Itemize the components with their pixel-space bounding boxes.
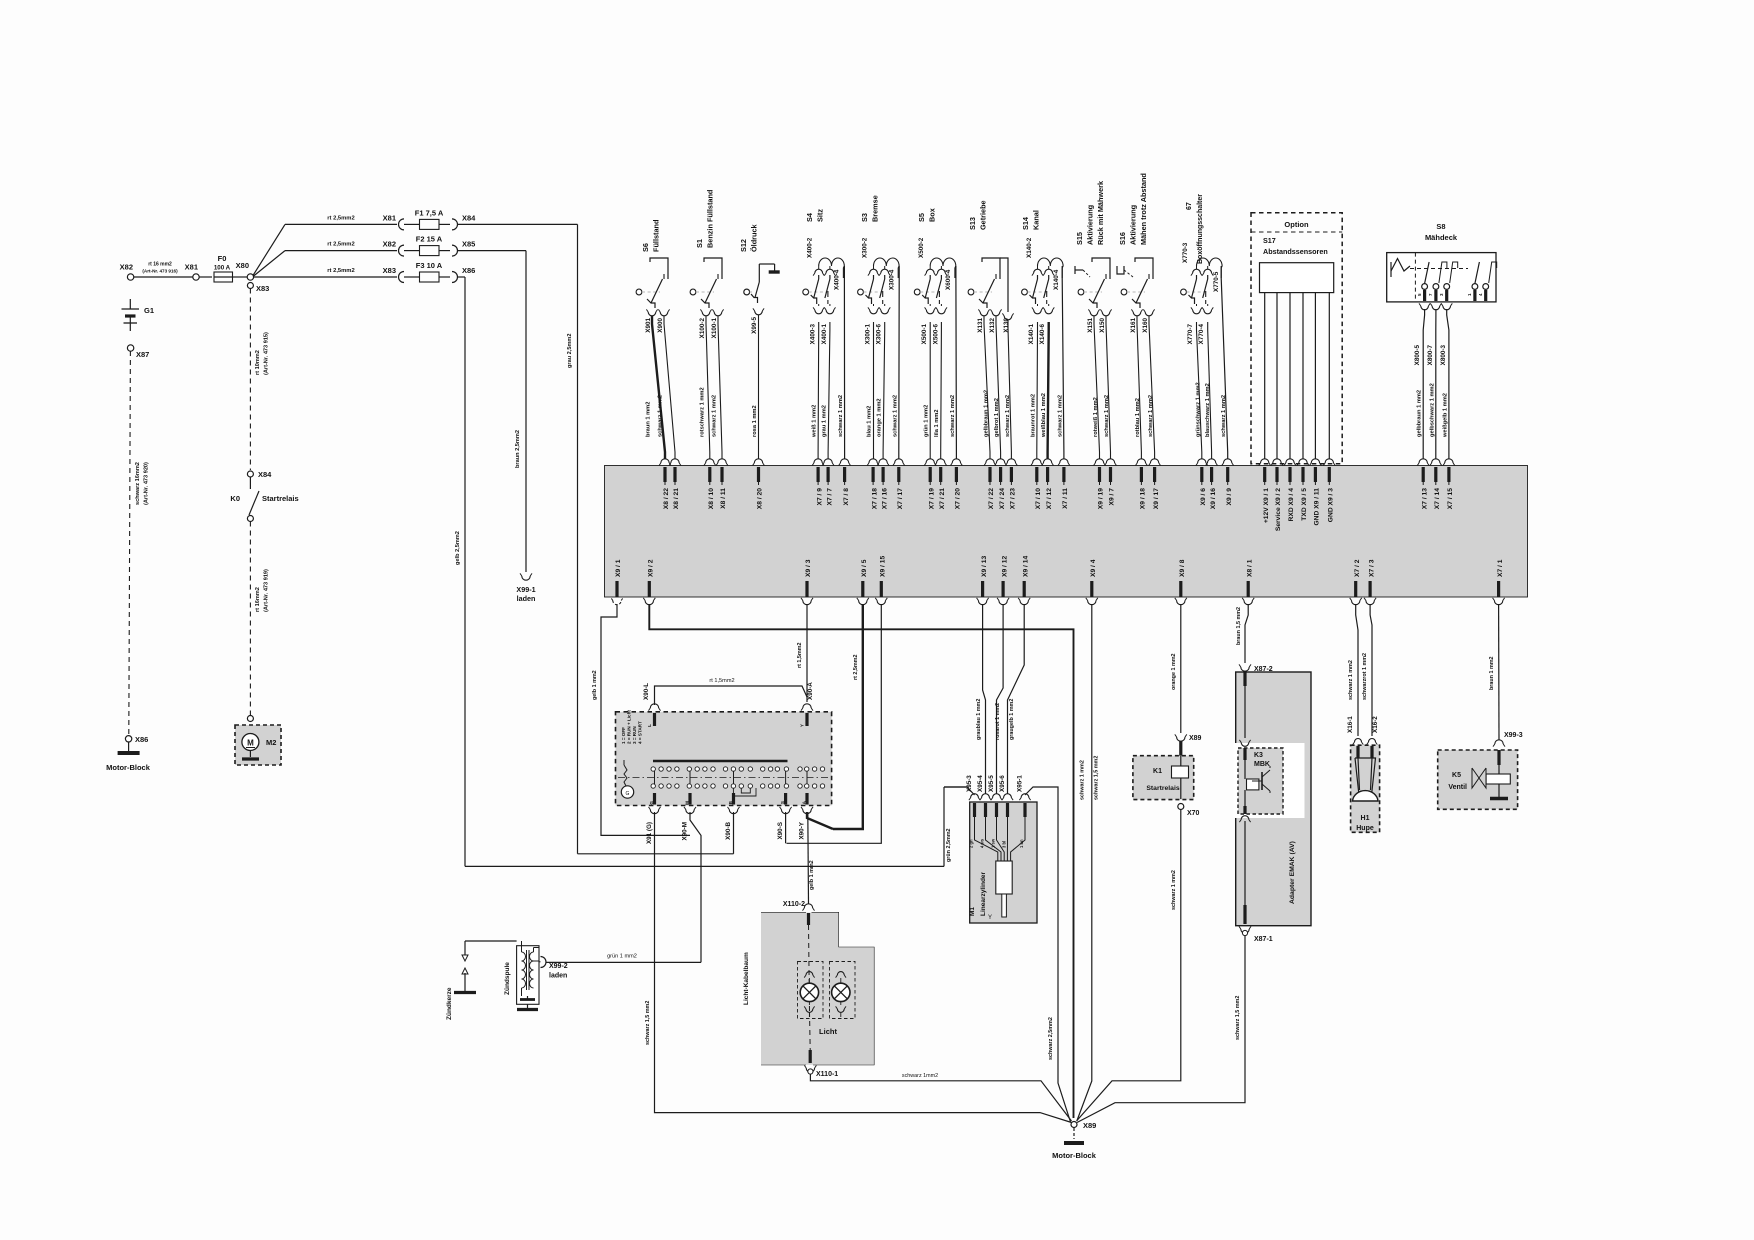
svg-text:lila 1 mm2: lila 1 mm2 [934, 409, 940, 437]
svg-text:X9 / 15: X9 / 15 [880, 556, 887, 577]
svg-text:X86: X86 [135, 735, 148, 744]
svg-text:rotblau 1 mm2: rotblau 1 mm2 [1135, 398, 1141, 437]
svg-text:X90-Y: X90-Y [799, 821, 806, 839]
svg-text:grau 1 mm2: grau 1 mm2 [822, 405, 828, 437]
svg-text:X87-1: X87-1 [1254, 936, 1273, 943]
svg-text:rt 10mm2: rt 10mm2 [255, 350, 261, 375]
svg-text:S4: S4 [805, 212, 814, 222]
svg-text:X110-1: X110-1 [816, 1071, 838, 1078]
svg-text:Mähdeck: Mähdeck [1425, 233, 1458, 242]
svg-text:Motor-Block: Motor-Block [1052, 1151, 1097, 1160]
svg-text:rotschwarz 1 mm2: rotschwarz 1 mm2 [700, 387, 706, 437]
svg-text:F0: F0 [218, 254, 227, 263]
svg-text:S1: S1 [695, 239, 704, 248]
svg-text:X100-2: X100-2 [699, 318, 706, 339]
svg-text:K3: K3 [1254, 752, 1263, 759]
svg-text:F2 15 A: F2 15 A [416, 235, 443, 244]
svg-text:Zündspule: Zündspule [504, 962, 511, 995]
svg-text:schwarz 1 mm2: schwarz 1 mm2 [658, 395, 664, 437]
svg-text:GND X9 / 11: GND X9 / 11 [1314, 488, 1321, 526]
svg-text:X7 / 8: X7 / 8 [843, 488, 850, 506]
svg-text:X95-1: X95-1 [1017, 775, 1024, 792]
svg-text:Sitz: Sitz [816, 209, 825, 222]
svg-text:1 = OFF: 1 = OFF [621, 727, 626, 744]
svg-text:rt 2,5mm2: rt 2,5mm2 [327, 268, 354, 274]
svg-text:(Art-Nr. 473 920): (Art-Nr. 473 920) [144, 462, 150, 505]
svg-text:X9 / 12: X9 / 12 [1001, 556, 1008, 577]
svg-text:X140-2: X140-2 [1026, 237, 1033, 258]
svg-text:67: 67 [1186, 202, 1193, 210]
svg-text:(Art-Nr. 473 916): (Art-Nr. 473 916) [142, 269, 178, 274]
svg-text:weißgelb 1 mm2: weißgelb 1 mm2 [1442, 393, 1448, 438]
svg-text:1 bn: 1 bn [1019, 839, 1024, 848]
svg-text:X87: X87 [136, 350, 149, 359]
svg-text:X81: X81 [383, 213, 396, 222]
svg-text:Benzin Füllstand: Benzin Füllstand [706, 190, 715, 248]
svg-text:graugelb 1 mm2: graugelb 1 mm2 [1009, 699, 1015, 740]
svg-text:X132: X132 [989, 318, 996, 333]
svg-text:X500-6: X500-6 [932, 324, 939, 345]
svg-text:grün 1 mm2: grün 1 mm2 [924, 405, 930, 437]
svg-text:X9 / 2: X9 / 2 [648, 559, 655, 577]
svg-text:X300-2: X300-2 [862, 237, 869, 258]
svg-text:X7 / 16: X7 / 16 [881, 488, 888, 509]
svg-text:schwarz 1 mm2: schwarz 1 mm2 [1104, 395, 1110, 437]
svg-text:S: S [780, 801, 785, 804]
svg-text:X770-5: X770-5 [1213, 271, 1220, 292]
svg-text:K0: K0 [230, 494, 240, 503]
svg-text:X84: X84 [462, 213, 476, 222]
svg-text:X83: X83 [256, 284, 269, 293]
svg-text:X99-2: X99-2 [549, 963, 568, 970]
svg-text:X9 / 5: X9 / 5 [861, 559, 868, 577]
svg-text:schwarz 1,5 mm2: schwarz 1,5 mm2 [645, 1001, 651, 1045]
svg-text:+12V X9 / 1: +12V X9 / 1 [1263, 488, 1270, 523]
svg-text:X8 / 22: X8 / 22 [663, 488, 670, 509]
svg-text:schwarz 1 mm2: schwarz 1 mm2 [1221, 395, 1227, 437]
svg-text:X9 / 17: X9 / 17 [1153, 488, 1160, 509]
svg-text:H1: H1 [1361, 815, 1370, 822]
svg-text:Rück mit Mähwerk: Rück mit Mähwerk [1096, 180, 1105, 245]
svg-text:RXD X9 / 4: RXD X9 / 4 [1288, 488, 1295, 522]
svg-text:Abstandssensoren: Abstandssensoren [1263, 247, 1328, 256]
svg-text:rosarot 1 mm2: rosarot 1 mm2 [995, 703, 1001, 740]
svg-text:braun 1 mm2: braun 1 mm2 [1489, 656, 1495, 690]
svg-text:X7 / 19: X7 / 19 [928, 488, 935, 509]
svg-text:X7 / 1: X7 / 1 [1497, 559, 1504, 577]
svg-text:X161: X161 [1130, 318, 1137, 333]
svg-text:orange 1 mm2: orange 1 mm2 [1171, 653, 1177, 690]
svg-text:X8 / 11: X8 / 11 [720, 488, 727, 509]
svg-text:X84: X84 [258, 470, 272, 479]
svg-text:X110-2: X110-2 [783, 901, 805, 908]
svg-text:100 A: 100 A [214, 265, 231, 272]
svg-text:Option: Option [1284, 220, 1309, 229]
svg-text:graublau 1 mm2: graublau 1 mm2 [976, 699, 982, 740]
svg-text:Öldruck: Öldruck [750, 223, 759, 252]
svg-text:X7 / 24: X7 / 24 [999, 488, 1006, 509]
svg-text:X9 / 16: X9 / 16 [1210, 488, 1217, 509]
svg-text:X151: X151 [1087, 318, 1094, 333]
svg-text:M: M [247, 739, 254, 748]
svg-text:S12: S12 [739, 239, 748, 252]
svg-text:Aktivierung: Aktivierung [1086, 205, 1095, 245]
svg-text:schwarz 1 mm2: schwarz 1 mm2 [838, 395, 844, 437]
svg-text:X770-3: X770-3 [1182, 242, 1189, 263]
svg-text:M1: M1 [969, 907, 976, 916]
svg-text:X7 / 2: X7 / 2 [1354, 559, 1361, 577]
svg-text:X7 / 23: X7 / 23 [1010, 488, 1017, 509]
svg-text:X8 / 10: X8 / 10 [708, 488, 715, 509]
svg-text:gelb 2,5mm2: gelb 2,5mm2 [455, 531, 461, 565]
svg-text:(Art-Nr. 473 919): (Art-Nr. 473 919) [264, 569, 270, 612]
svg-text:X82: X82 [120, 263, 133, 272]
svg-text:Hupe: Hupe [1356, 825, 1374, 832]
svg-text:X70: X70 [1187, 810, 1200, 817]
svg-text:S3: S3 [860, 213, 869, 222]
svg-text:schwarz 1 mm2: schwarz 1 mm2 [712, 395, 718, 437]
svg-text:S16: S16 [1118, 232, 1127, 245]
svg-text:Startrelais: Startrelais [262, 494, 299, 503]
svg-text:X7 / 18: X7 / 18 [871, 488, 878, 509]
svg-text:schwarz 1 mm2: schwarz 1 mm2 [1171, 870, 1177, 910]
svg-text:Box: Box [928, 208, 937, 222]
svg-text:X160: X160 [1142, 318, 1149, 333]
svg-text:X90-S: X90-S [777, 822, 784, 840]
svg-text:rt 1,5mm2: rt 1,5mm2 [709, 678, 734, 684]
svg-text:X99-5: X99-5 [751, 317, 758, 334]
svg-text:X9 / 6: X9 / 6 [1200, 488, 1207, 506]
svg-text:X7 / 12: X7 / 12 [1046, 488, 1053, 509]
svg-text:G: G [649, 801, 654, 805]
svg-text:rotweiß 1 mm2: rotweiß 1 mm2 [1093, 397, 1099, 437]
svg-text:X9 / 3: X9 / 3 [805, 559, 812, 577]
svg-text:X95-6: X95-6 [999, 775, 1006, 792]
svg-text:Zündkerze: Zündkerze [446, 987, 453, 1020]
svg-text:X86: X86 [462, 266, 475, 275]
svg-text:F3 10 A: F3 10 A [416, 261, 443, 270]
svg-text:braunrot 1 mm2: braunrot 1 mm2 [1030, 394, 1036, 437]
svg-text:X85: X85 [462, 240, 475, 249]
svg-text:X9 / 1: X9 / 1 [615, 559, 622, 577]
svg-text:S13: S13 [968, 217, 977, 230]
svg-text:M: M [685, 801, 690, 805]
svg-text:X99-1: X99-1 [516, 585, 535, 594]
svg-text:Adapter EMAK (AV): Adapter EMAK (AV) [1289, 841, 1296, 904]
svg-text:X7 / 20: X7 / 20 [955, 488, 962, 509]
svg-text:Startrelais: Startrelais [1146, 785, 1179, 792]
svg-text:Service X9 / 2: Service X9 / 2 [1275, 488, 1282, 531]
svg-text:X87-2: X87-2 [1254, 666, 1273, 673]
svg-text:X400-4: X400-4 [834, 269, 841, 290]
svg-text:gelbbraun 1 mm2: gelbbraun 1 mm2 [1417, 390, 1423, 437]
svg-text:X7 / 21: X7 / 21 [939, 488, 946, 509]
svg-text:schwarz 1,5 mm2: schwarz 1,5 mm2 [1235, 996, 1241, 1040]
svg-text:X140-1: X140-1 [1028, 324, 1035, 345]
svg-text:X300-1: X300-1 [865, 324, 872, 345]
svg-text:rt 2,5mm2: rt 2,5mm2 [327, 242, 354, 248]
svg-text:X400-2: X400-2 [807, 237, 814, 258]
svg-text:blau 1 mm2: blau 1 mm2 [867, 406, 873, 437]
svg-text:Licht: Licht [819, 1027, 837, 1036]
svg-text:schwarzrot 1 mm2: schwarzrot 1 mm2 [1362, 653, 1368, 700]
svg-text:X82: X82 [383, 240, 396, 249]
svg-text:MBK: MBK [1254, 761, 1270, 768]
svg-text:X7 / 11: X7 / 11 [1062, 488, 1069, 509]
svg-text:schwarz 1,5 mm2: schwarz 1,5 mm2 [1094, 756, 1100, 800]
svg-text:schwarz 1 mm2: schwarz 1 mm2 [1148, 395, 1154, 437]
svg-text:X500-1: X500-1 [921, 324, 928, 345]
svg-text:schwarz 1mm2: schwarz 1mm2 [902, 1073, 938, 1079]
svg-text:X95-4: X95-4 [977, 775, 984, 792]
svg-text:X7 / 7: X7 / 7 [826, 488, 833, 506]
svg-text:X150: X150 [1099, 318, 1106, 333]
svg-text:4 ws: 4 ws [980, 838, 985, 848]
svg-text:S14: S14 [1021, 216, 1030, 230]
svg-text:X7 / 15: X7 / 15 [1447, 488, 1454, 509]
svg-text:X16-2: X16-2 [1372, 716, 1379, 733]
svg-text:blauschwarz 1 mm2: blauschwarz 1 mm2 [1205, 383, 1211, 437]
svg-text:X770-4: X770-4 [1198, 324, 1205, 345]
svg-text:Y: Y [800, 724, 805, 727]
svg-text:gelb 1 mm2: gelb 1 mm2 [809, 860, 815, 890]
svg-text:grünschwarz 1 mm2: grünschwarz 1 mm2 [1195, 382, 1201, 437]
svg-text:X800-7: X800-7 [1427, 345, 1434, 366]
svg-text:gelb 1 mm2: gelb 1 mm2 [592, 670, 598, 700]
svg-text:X9 / 13: X9 / 13 [981, 556, 988, 577]
svg-text:braun 1 mm2: braun 1 mm2 [646, 402, 652, 437]
svg-text:X90-A: X90-A [807, 682, 814, 700]
svg-text:K5: K5 [1452, 772, 1461, 779]
svg-text:X9 / 19: X9 / 19 [1098, 488, 1105, 509]
svg-text:Motor-Block: Motor-Block [106, 763, 151, 772]
svg-text:X7 / 9: X7 / 9 [816, 488, 823, 506]
svg-text:S15: S15 [1075, 232, 1084, 245]
svg-text:X95-5: X95-5 [988, 775, 995, 792]
svg-text:weißblau 1 mm2: weißblau 1 mm2 [1041, 393, 1047, 438]
svg-text:X600-4: X600-4 [945, 269, 952, 290]
svg-text:schwarz 1 mm2: schwarz 1 mm2 [1005, 395, 1011, 437]
svg-text:X900: X900 [657, 318, 664, 333]
svg-text:laden: laden [549, 973, 567, 980]
svg-text:3 bl: 3 bl [1002, 841, 1007, 848]
svg-text:Mähen trotz Abstand: Mähen trotz Abstand [1139, 173, 1148, 245]
svg-text:GND X9 / 3: GND X9 / 3 [1328, 488, 1335, 522]
svg-text:K1: K1 [1153, 768, 1162, 775]
svg-text:X83: X83 [383, 266, 396, 275]
svg-text:S8: S8 [1436, 222, 1445, 231]
svg-text:schwarz 1 mm2: schwarz 1 mm2 [1348, 660, 1354, 700]
svg-text:rt 2,5mm2: rt 2,5mm2 [327, 215, 354, 221]
svg-text:X140-6: X140-6 [1039, 324, 1046, 345]
svg-text:schwarz 1 mm2: schwarz 1 mm2 [1080, 760, 1086, 800]
svg-text:S5: S5 [917, 213, 926, 222]
svg-text:schwarz 1 mm2: schwarz 1 mm2 [892, 395, 898, 437]
svg-text:X90-L: X90-L [643, 683, 650, 700]
svg-text:Boxöffnungsschalter: Boxöffnungsschalter [1197, 194, 1204, 264]
svg-text:(Art-Nr. 473 915): (Art-Nr. 473 915) [264, 332, 270, 375]
svg-text:X90-M: X90-M [682, 822, 689, 841]
svg-text:S17: S17 [1263, 236, 1276, 245]
svg-text:X81: X81 [185, 263, 198, 272]
svg-text:rt 16mm2: rt 16mm2 [255, 587, 261, 612]
svg-text:X7 / 3: X7 / 3 [1368, 559, 1375, 577]
svg-text:X9 / 7: X9 / 7 [1109, 488, 1116, 506]
svg-text:X9 / 9: X9 / 9 [1226, 488, 1233, 506]
svg-text:gelbbraun 1 mm2: gelbbraun 1 mm2 [984, 390, 990, 437]
svg-text:X7 / 17: X7 / 17 [897, 488, 904, 509]
svg-text:X140-4: X140-4 [1053, 269, 1060, 290]
svg-text:X90-B: X90-B [725, 822, 732, 840]
svg-text:X80: X80 [236, 261, 249, 270]
svg-text:gelbschwarz 1 mm2: gelbschwarz 1 mm2 [1429, 383, 1435, 437]
svg-text:M2: M2 [266, 738, 276, 747]
svg-text:X99-3: X99-3 [1504, 732, 1523, 739]
svg-text:schwarz 16mm2: schwarz 16mm2 [135, 462, 141, 505]
svg-text:X100-1: X100-1 [711, 318, 718, 339]
svg-text:X7 / 10: X7 / 10 [1035, 488, 1042, 509]
svg-text:X16-1: X16-1 [1347, 716, 1354, 733]
svg-text:schwarz 1 mm2: schwarz 1 mm2 [1057, 395, 1063, 437]
svg-text:braun 1,5 mm2: braun 1,5 mm2 [1236, 607, 1242, 645]
svg-text:weiß 1 mm2: weiß 1 mm2 [812, 405, 818, 438]
svg-text:Getriebe: Getriebe [979, 200, 988, 230]
svg-text:X7 / 22: X7 / 22 [988, 488, 995, 509]
svg-text:S6: S6 [641, 243, 650, 252]
svg-text:1 sw: 1 sw [991, 838, 996, 848]
svg-text:X500-2: X500-2 [918, 237, 925, 258]
svg-text:X89: X89 [1189, 735, 1202, 742]
svg-text:3 = RUN: 3 = RUN [632, 726, 637, 744]
svg-text:TXD X9 / 5: TXD X9 / 5 [1301, 488, 1308, 521]
svg-text:Licht-Kabelbaum: Licht-Kabelbaum [743, 952, 750, 1005]
svg-text:X7 / 13: X7 / 13 [1421, 488, 1428, 509]
svg-text:rt 2,5mm2: rt 2,5mm2 [853, 655, 859, 680]
svg-text:X89: X89 [1083, 1121, 1096, 1130]
svg-text:X400-3: X400-3 [810, 324, 817, 345]
svg-text:Bremse: Bremse [871, 195, 880, 222]
svg-text:X400-1: X400-1 [821, 324, 828, 345]
svg-text:X9 / 8: X9 / 8 [1179, 559, 1186, 577]
svg-text:grün 1 mm2: grün 1 mm2 [607, 954, 637, 960]
svg-text:Y: Y [988, 915, 992, 921]
svg-text:G: G [626, 791, 630, 797]
svg-text:grau 2,5mm2: grau 2,5mm2 [567, 333, 573, 368]
svg-text:rt 1,5mm2: rt 1,5mm2 [797, 643, 803, 668]
svg-text:X9 / 14: X9 / 14 [1022, 556, 1029, 577]
svg-text:X300-4: X300-4 [889, 269, 896, 290]
svg-text:rosa 1 mm2: rosa 1 mm2 [752, 405, 758, 437]
svg-text:X300-6: X300-6 [876, 324, 883, 345]
svg-text:X9 / 18: X9 / 18 [1140, 488, 1147, 509]
svg-text:G1: G1 [144, 306, 154, 315]
svg-text:Linearzylinder: Linearzylinder [980, 871, 987, 916]
svg-text:X9 / 4: X9 / 4 [1090, 559, 1097, 577]
svg-text:schwarz 1 mm2: schwarz 1 mm2 [950, 395, 956, 437]
svg-text:schwarz 2,5mm2: schwarz 2,5mm2 [1048, 1017, 1054, 1060]
svg-text:X7 / 14: X7 / 14 [1434, 488, 1441, 509]
svg-text:4 = START: 4 = START [638, 721, 643, 744]
svg-text:X800-3: X800-3 [1440, 345, 1447, 366]
svg-text:gelbrot 1 mm2: gelbrot 1 mm2 [994, 398, 1000, 437]
svg-text:L: L [647, 724, 652, 727]
svg-text:Ventil: Ventil [1448, 784, 1467, 791]
svg-text:F1 7,5 A: F1 7,5 A [415, 208, 444, 217]
svg-text:Kanal: Kanal [1032, 210, 1041, 230]
svg-text:X8 / 21: X8 / 21 [673, 488, 680, 509]
svg-text:X800-5: X800-5 [1414, 345, 1421, 366]
svg-text:X8 / 1: X8 / 1 [1246, 559, 1253, 577]
svg-text:grün 2,5mm2: grün 2,5mm2 [946, 828, 952, 862]
svg-text:Füllstand: Füllstand [652, 220, 661, 252]
svg-text:X770-7: X770-7 [1187, 324, 1194, 345]
svg-text:orange 1 mm2: orange 1 mm2 [877, 398, 883, 437]
svg-text:Aktivierung: Aktivierung [1129, 205, 1138, 245]
svg-text:laden: laden [517, 594, 536, 603]
svg-text:2 gn: 2 gn [969, 839, 974, 848]
svg-text:2 = RUN + Licht: 2 = RUN + Licht [627, 710, 632, 744]
svg-text:X8 / 20: X8 / 20 [757, 488, 764, 509]
svg-text:X91 (G): X91 (G) [646, 822, 653, 844]
svg-text:X131: X131 [977, 318, 984, 333]
svg-text:rt 16 mm2: rt 16 mm2 [148, 262, 172, 268]
svg-text:braun 2,5mm2: braun 2,5mm2 [515, 430, 521, 468]
